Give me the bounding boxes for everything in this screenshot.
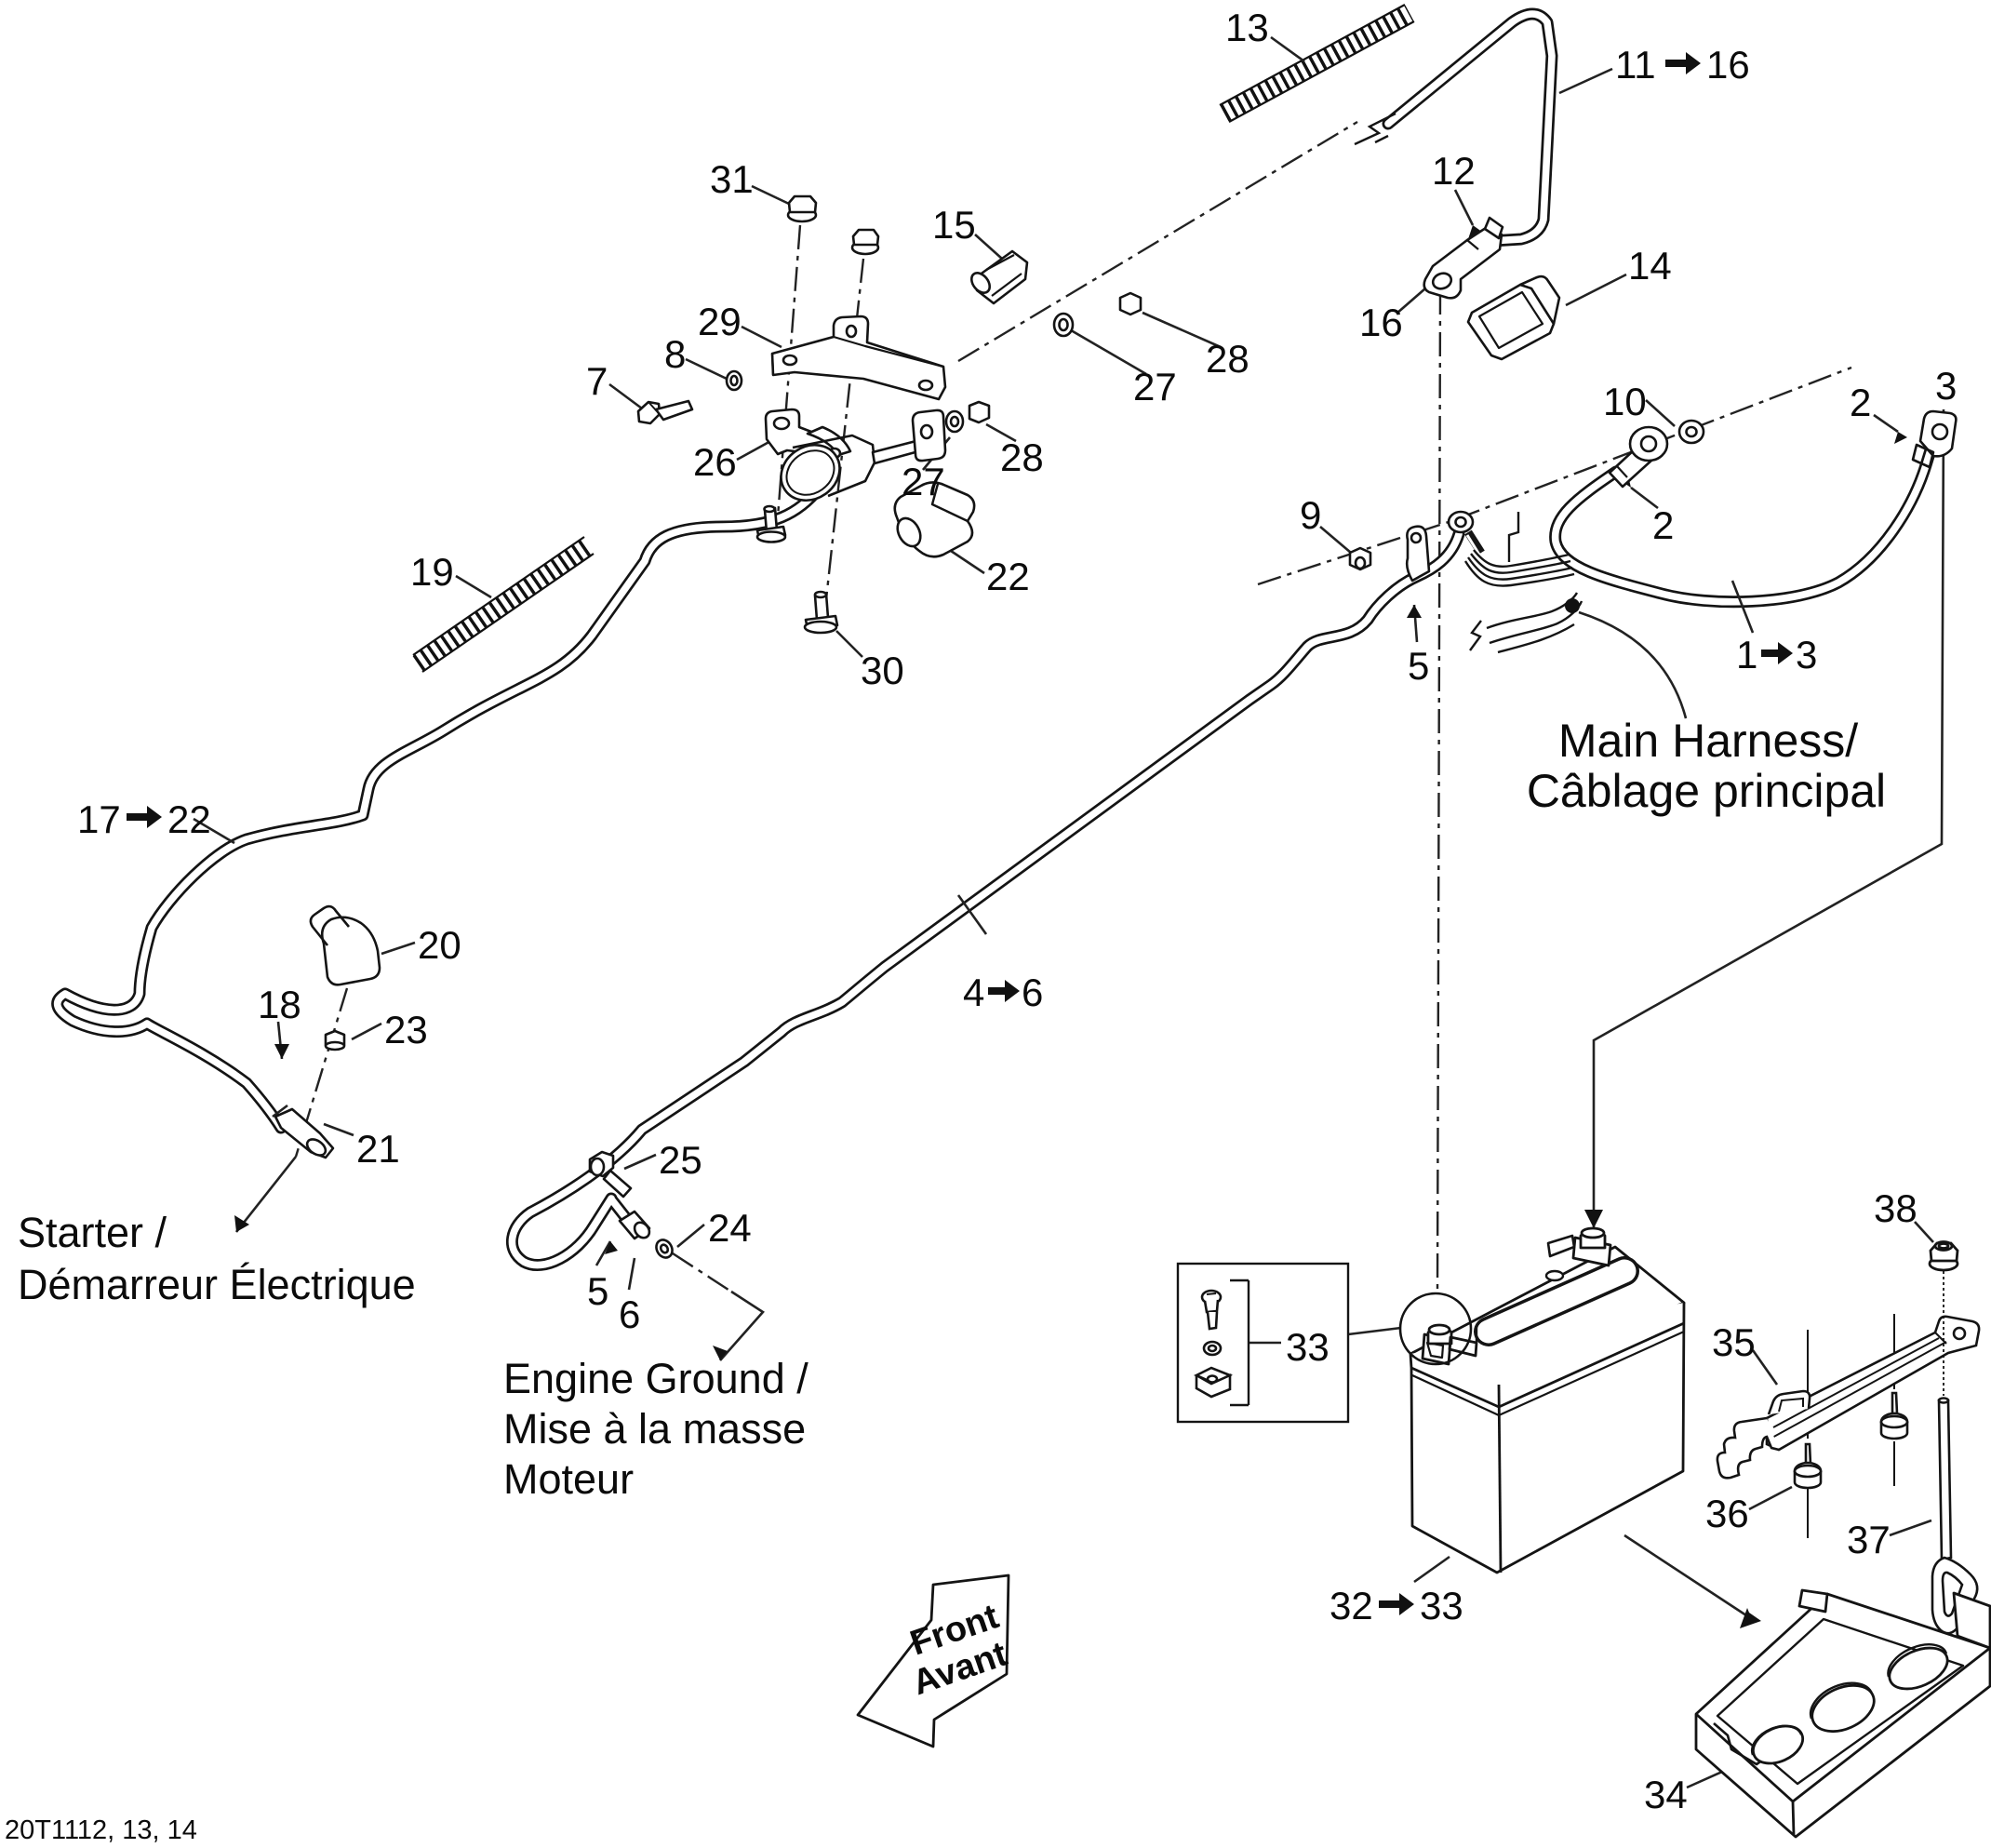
svg-text:8: 8: [664, 332, 686, 376]
svg-text:13: 13: [1225, 6, 1269, 49]
svg-text:16: 16: [1706, 43, 1750, 87]
svg-text:6: 6: [1022, 971, 1043, 1014]
svg-text:34: 34: [1644, 1773, 1688, 1816]
svg-text:21: 21: [356, 1127, 400, 1171]
svg-text:26: 26: [693, 440, 737, 484]
svg-text:25: 25: [659, 1138, 702, 1182]
svg-text:Démarreur Électrique: Démarreur Électrique: [18, 1261, 416, 1308]
svg-text:19: 19: [410, 550, 454, 594]
svg-text:4: 4: [963, 971, 984, 1014]
svg-text:20T1112, 13, 14: 20T1112, 13, 14: [5, 1815, 197, 1845]
svg-text:22: 22: [986, 555, 1030, 598]
svg-text:Mise à la masse: Mise à la masse: [503, 1405, 806, 1453]
svg-text:Starter /: Starter /: [18, 1209, 167, 1256]
svg-text:Main Harness/: Main Harness/: [1558, 715, 1858, 767]
svg-text:17: 17: [77, 797, 121, 841]
svg-text:11: 11: [1615, 43, 1656, 87]
svg-text:6: 6: [619, 1292, 640, 1336]
svg-text:10: 10: [1603, 380, 1647, 423]
svg-text:31: 31: [710, 157, 754, 201]
svg-text:2: 2: [1850, 381, 1871, 424]
svg-text:2: 2: [1652, 503, 1674, 547]
svg-text:38: 38: [1874, 1186, 1918, 1230]
svg-text:12: 12: [1432, 149, 1476, 193]
svg-text:1: 1: [1736, 633, 1757, 676]
svg-text:32: 32: [1330, 1584, 1373, 1627]
svg-text:9: 9: [1300, 493, 1321, 537]
svg-text:23: 23: [384, 1008, 428, 1051]
svg-text:30: 30: [861, 649, 904, 692]
svg-text:Câblage principal: Câblage principal: [1527, 765, 1886, 817]
svg-text:Engine Ground /: Engine Ground /: [503, 1355, 808, 1402]
svg-text:15: 15: [932, 203, 976, 247]
svg-text:3: 3: [1796, 633, 1817, 676]
svg-text:18: 18: [258, 983, 301, 1026]
svg-text:37: 37: [1847, 1518, 1891, 1561]
svg-text:7: 7: [586, 359, 608, 403]
svg-text:27: 27: [902, 460, 945, 503]
svg-text:14: 14: [1628, 244, 1672, 288]
svg-text:33: 33: [1420, 1584, 1463, 1627]
svg-text:27: 27: [1133, 365, 1177, 408]
svg-text:28: 28: [1206, 337, 1249, 381]
svg-text:20: 20: [418, 923, 461, 967]
svg-text:36: 36: [1705, 1492, 1749, 1535]
svg-text:3: 3: [1935, 364, 1957, 408]
svg-text:29: 29: [698, 300, 742, 343]
svg-text:24: 24: [708, 1206, 752, 1250]
svg-text:28: 28: [1000, 435, 1044, 479]
svg-text:Moteur: Moteur: [503, 1455, 634, 1503]
svg-text:22: 22: [167, 797, 211, 841]
svg-text:5: 5: [1408, 644, 1429, 688]
svg-text:35: 35: [1712, 1320, 1756, 1364]
svg-text:33: 33: [1286, 1325, 1330, 1369]
svg-text:5: 5: [587, 1269, 608, 1313]
svg-text:16: 16: [1359, 301, 1403, 344]
